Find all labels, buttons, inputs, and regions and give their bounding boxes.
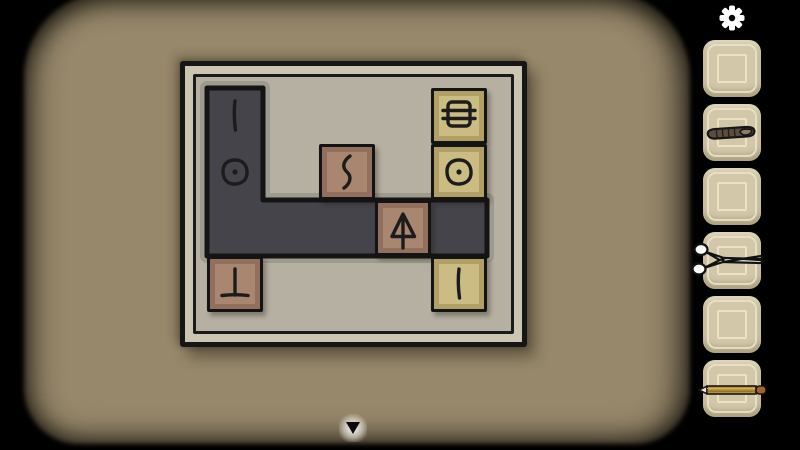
inventory-slot-3[interactable] [703, 168, 761, 225]
nav-down-button[interactable] [339, 412, 367, 442]
inventory-slot-2[interactable] [703, 104, 761, 161]
path-mark-circle-dot [207, 144, 263, 200]
pencil-icon [698, 384, 768, 396]
tile-vertical-line[interactable] [431, 256, 487, 312]
inventory-panel [703, 40, 761, 417]
circle-dot-symbol-icon [210, 147, 260, 197]
circle-dot-symbol-icon [434, 147, 484, 197]
down-arrow-icon [340, 415, 366, 439]
path-mark-vertical-line [207, 88, 263, 144]
barred-square-symbol-icon [434, 91, 484, 141]
settings-button[interactable] [718, 4, 746, 32]
inventory-item-cigar[interactable] [704, 123, 759, 148]
board-layer [185, 66, 522, 342]
puzzle-board[interactable] [180, 61, 527, 347]
inverted-t-symbol-icon [210, 259, 260, 309]
vertical-line-symbol-icon [210, 91, 260, 141]
arrow-up-symbol-icon [378, 203, 428, 253]
inventory-slot-5[interactable] [703, 296, 761, 353]
inventory-slot-4[interactable] [703, 232, 761, 289]
tile-barred-square[interactable] [431, 88, 487, 144]
tile-inverted-t[interactable] [207, 256, 263, 312]
cigar-icon [704, 123, 759, 143]
squiggle-symbol-icon [322, 147, 372, 197]
inventory-item-pencil[interactable] [698, 383, 768, 401]
inventory-slot-1[interactable] [703, 40, 761, 97]
inventory-item-scissors[interactable] [692, 241, 766, 284]
gear-icon [718, 4, 746, 32]
scissors-icon [692, 241, 766, 279]
vertical-line-symbol-icon [434, 259, 484, 309]
tile-arrow-up[interactable] [375, 200, 431, 256]
tile-circle-dot[interactable] [431, 144, 487, 200]
inventory-slot-6[interactable] [703, 360, 761, 417]
tile-squiggle[interactable] [319, 144, 375, 200]
